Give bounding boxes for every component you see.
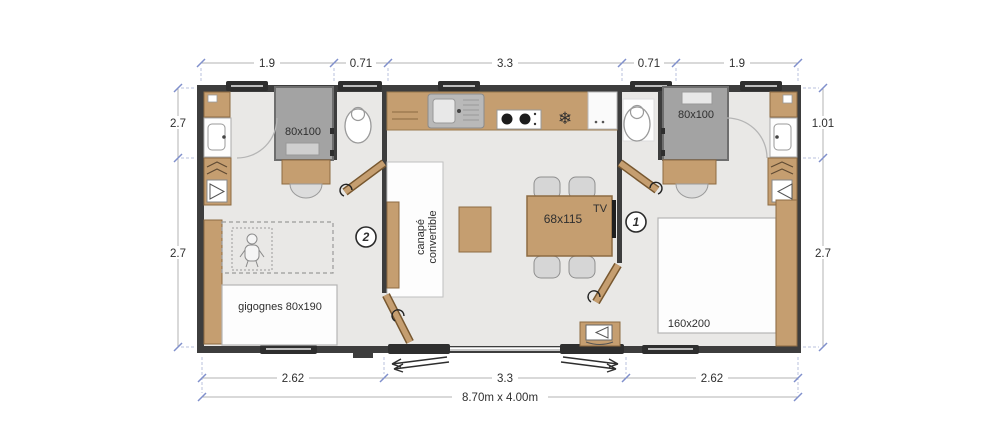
dim-top-1: 1.9 — [259, 58, 275, 70]
tv-icon — [612, 200, 616, 238]
double-bed — [658, 218, 776, 333]
shower-right-label: 80x100 — [678, 109, 714, 121]
kitchen-cabinet — [588, 92, 617, 129]
dim-left-2: 2.7 — [170, 248, 186, 260]
sofa-bed: canapéconvertible — [387, 162, 443, 297]
svg-text:1: 1 — [633, 215, 640, 229]
tv-label: TV — [593, 203, 608, 215]
slide-arrow-right — [561, 362, 616, 372]
sliding-door-icon — [388, 344, 624, 372]
window-icon — [226, 81, 268, 91]
cabinet-icon — [770, 92, 797, 117]
bed-head-panel — [776, 200, 797, 346]
partition-wall-right — [617, 92, 622, 263]
shower-left: 80x100 — [275, 87, 334, 160]
dim-top-4: 0.71 — [638, 58, 660, 70]
kitchen: ❄ — [387, 92, 617, 130]
dim-right-2: 2.7 — [815, 248, 831, 260]
dim-bottom-3: 2.62 — [701, 373, 723, 385]
entry-wardrobe-icon — [580, 322, 620, 346]
dimension-right: 1.01 2.7 — [803, 84, 840, 351]
entry-step — [353, 353, 373, 358]
chair-icon — [534, 256, 560, 278]
dim-bottom-1: 2.62 — [282, 373, 304, 385]
dim-left-1: 2.7 — [170, 118, 186, 130]
bed-side-panel — [204, 220, 222, 344]
chair-icon — [569, 256, 595, 278]
dim-bottom-2: 3.3 — [497, 373, 513, 385]
dining-table-label: 68x115 — [544, 212, 583, 226]
window-icon — [642, 345, 699, 354]
fridge-icon: ❄ — [558, 109, 572, 128]
dim-right-1: 1.01 — [812, 118, 834, 130]
sink-icon — [428, 94, 484, 128]
room-number-2: 2 — [356, 227, 376, 247]
dimension-top: 1.9 0.71 3.3 0.71 1.9 — [197, 56, 802, 83]
dim-top-5: 1.9 — [729, 58, 745, 70]
floor-plan: ❄ 80x100 — [0, 0, 1000, 437]
dim-top-2: 0.71 — [350, 58, 372, 70]
cabinet-icon — [204, 92, 230, 117]
wardrobe-icon — [768, 158, 797, 205]
window-icon — [438, 81, 480, 91]
double-bed-label: 160x200 — [668, 318, 710, 330]
dim-top-3: 3.3 — [497, 58, 513, 70]
window-icon — [260, 345, 317, 354]
dimension-overall: 8.70m x 4.00m — [198, 390, 802, 404]
window-icon — [740, 81, 782, 91]
partition-wall-left — [382, 92, 387, 293]
dimension-bottom: 2.62 3.3 2.62 — [198, 357, 802, 393]
shower-right: 80x100 — [661, 87, 728, 160]
overall-dimensions-label: 8.70m x 4.00m — [462, 392, 538, 404]
sofa-label-line1: canapé — [415, 219, 427, 255]
stove-icon — [497, 110, 541, 129]
slide-arrow-left — [394, 362, 449, 372]
room-number-1: 1 — [626, 212, 646, 232]
coffee-table — [459, 207, 491, 252]
washbasin-icon — [770, 118, 797, 157]
toilet-icon — [623, 99, 654, 141]
wardrobe-icon — [204, 158, 231, 205]
dimension-left: 2.7 2.7 — [165, 84, 195, 351]
trundle-bed — [222, 285, 337, 345]
floor-plan-canvas: ❄ 80x100 — [0, 0, 1000, 437]
window-icon — [338, 81, 382, 91]
sofa-label-line2: convertible — [427, 210, 439, 263]
svg-text:2: 2 — [362, 230, 370, 244]
shower-left-label: 80x100 — [285, 126, 321, 138]
trundle-bed-label: gigognes 80x190 — [238, 301, 322, 313]
wall-left — [197, 85, 204, 353]
washbasin-icon — [204, 118, 231, 157]
